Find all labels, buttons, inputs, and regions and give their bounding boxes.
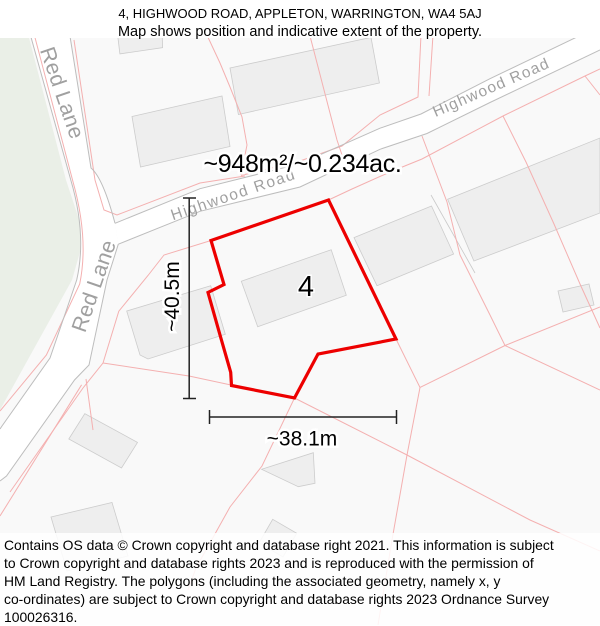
svg-text:~38.1m: ~38.1m (267, 428, 338, 451)
svg-text:~40.5m: ~40.5m (161, 261, 184, 332)
svg-text:~948m²/~0.234ac.: ~948m²/~0.234ac. (203, 150, 401, 178)
svg-text:4: 4 (298, 271, 314, 303)
